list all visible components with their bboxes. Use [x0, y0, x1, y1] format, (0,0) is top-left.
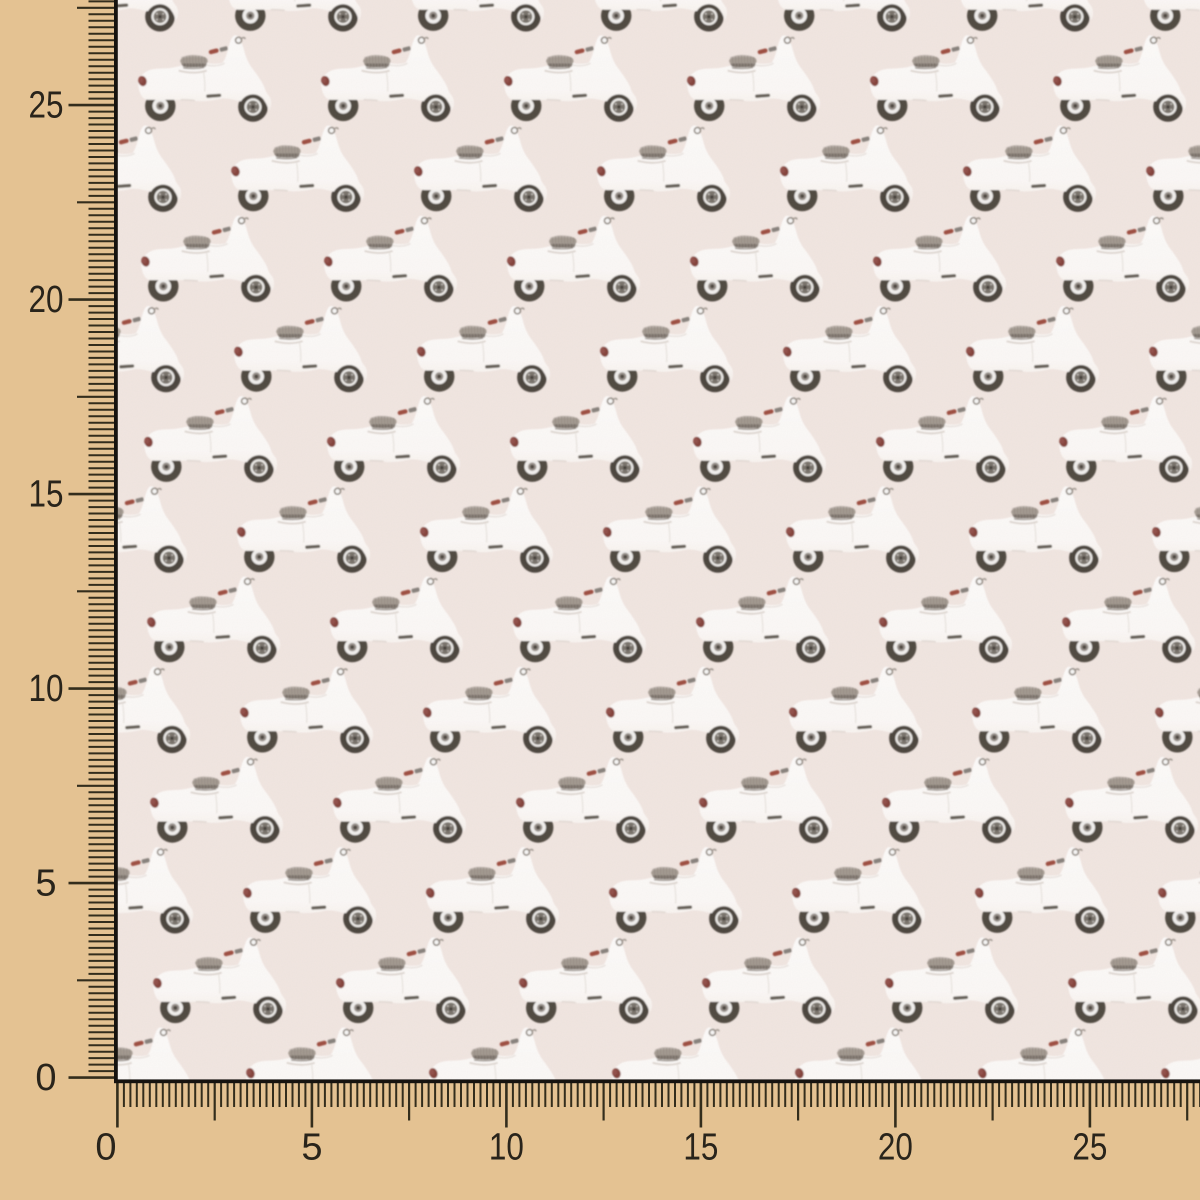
svg-text:15: 15 — [29, 474, 64, 516]
svg-text:5: 5 — [35, 863, 56, 905]
svg-text:20: 20 — [878, 1127, 913, 1169]
svg-text:0: 0 — [95, 1127, 116, 1169]
svg-text:5: 5 — [301, 1127, 322, 1169]
svg-text:0: 0 — [35, 1057, 56, 1099]
svg-text:20: 20 — [29, 279, 64, 321]
svg-text:25: 25 — [1072, 1127, 1107, 1169]
svg-text:25: 25 — [29, 85, 64, 127]
svg-text:10: 10 — [489, 1127, 524, 1169]
svg-text:10: 10 — [29, 668, 64, 710]
svg-text:15: 15 — [683, 1127, 718, 1169]
